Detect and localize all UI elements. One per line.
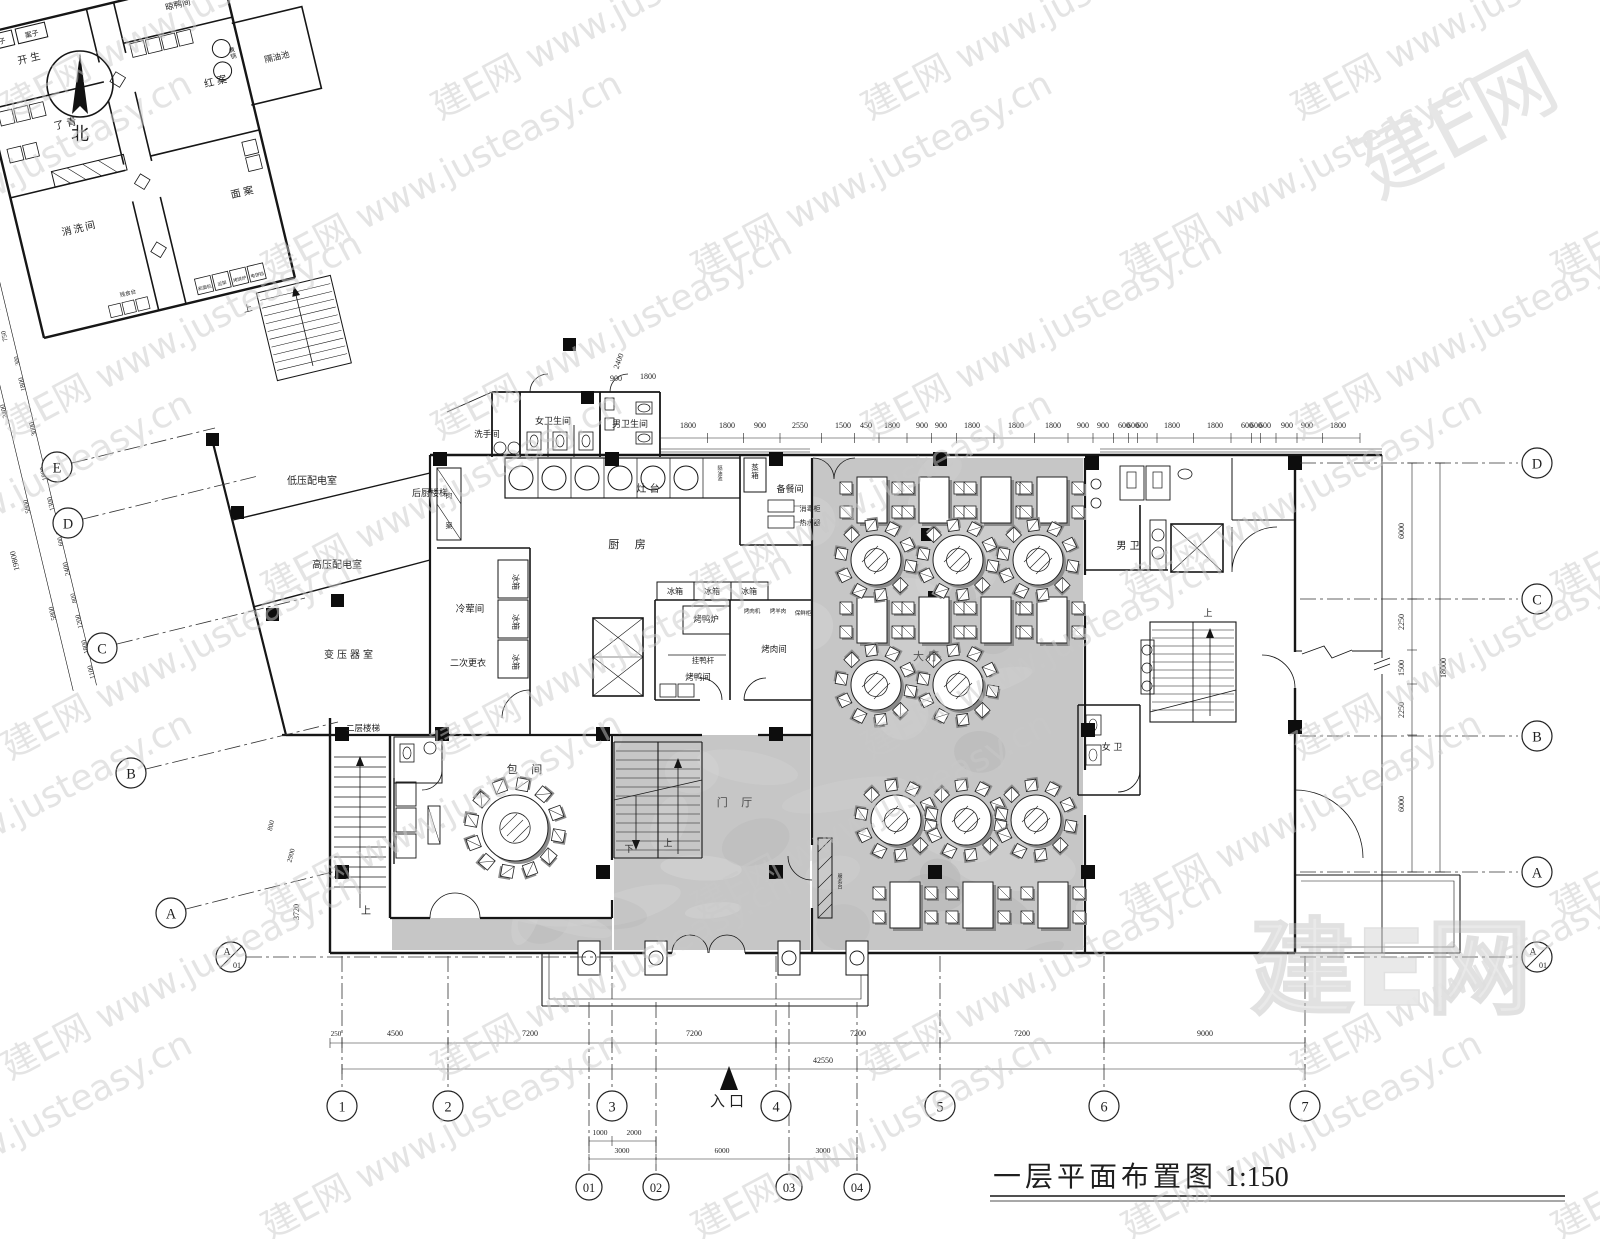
room-label: 大厅 [913,649,943,663]
wing-room-label: 红案 [203,72,231,91]
dim-text: 2250 [1397,614,1406,630]
marble-blob [445,853,556,913]
marble-blob [552,492,677,576]
dim-text: 2900 [285,847,296,863]
dim-text: 1800 [680,421,696,430]
grid-label: 01 [583,1181,595,1195]
grid-label: 4 [772,1100,779,1116]
dim-text: 250 [331,1030,342,1038]
wing-dim-text: 300 [14,356,22,366]
room-label: 男 卫 [1116,540,1139,552]
grid-bubble-01: 01 [576,1174,602,1200]
dim-total-text: 42550 [813,1056,833,1065]
equipment-label: 烤肉机 [744,607,761,615]
dim-text: 7200 [850,1029,866,1038]
dim-text: 7200 [686,1029,702,1038]
grid-label: B [1532,730,1542,746]
dim-text: 600 [1136,421,1148,430]
equipment-label: 烤羊肉 [770,607,787,615]
wing-dim-text: 750 [0,330,10,343]
wing-dim-text: 1800 [17,376,28,392]
marble-blob [741,597,817,651]
wing-room-label: 面案 [229,182,257,201]
room-label: 变压器室 [324,648,376,661]
wing-dim-text: 5800 [47,605,58,621]
room-label: 冰箱 [511,654,521,670]
wing-dim-text: 600 [57,537,65,547]
dim-text: 1500 [835,421,851,430]
wing-room-label: 和面机 [197,282,212,292]
equipment-label: 服务台 [837,874,842,891]
entrance-arrow [720,1066,738,1090]
dim-text: 900 [610,374,622,383]
marble-blob [443,538,476,570]
drawing-title: 一层平面布置图 [993,1160,1217,1193]
grid-label: 1 [338,1100,345,1116]
title-block: 一层平面布置图1:150 [993,1160,1289,1193]
grid-bubble-A: A [1522,857,1552,887]
dim-text: 900 [754,421,766,430]
grid-label: 6 [1100,1100,1107,1116]
room-label: 二层楼梯 [346,723,381,734]
stair-direction-label: 上 [663,838,672,849]
dim-text: 1800 [719,421,735,430]
room-label: 挂鸭杆 [692,655,715,665]
marble-blob [416,513,544,588]
grid-bubble-A: A [156,898,186,928]
wing-dim-text: 1470 [0,296,2,312]
room-label: 烤肉间 [761,644,787,655]
wing-room-label: 案子 [0,36,7,48]
room-label: 门 厅 [717,795,758,809]
grid-label: 02 [650,1181,662,1195]
grid-label: 3 [608,1100,615,1116]
dim-text: 900 [1097,421,1109,430]
room-label: 冰箱 [511,614,521,630]
dim-text: 600 [1259,421,1271,430]
grid-label: D [63,517,73,533]
wing-dim-text: 19800 [8,550,21,572]
room-label: 低压配电室 [287,474,337,487]
wing-room-label: 案子 [24,28,40,40]
room-label: 灶 台 [636,482,659,495]
dim-text: 900 [935,421,947,430]
grid-bubble-6: 6 [1089,1091,1119,1121]
stair-direction-label: 上 [1203,608,1212,619]
dim-text: 3000 [615,1146,630,1155]
dim-text: 4500 [387,1029,403,1038]
kitchen-wing: 案子案子开生晾鸭间红案隔油池煮锅了青面案消洗间残食台上和面机运架烤饼炉电饼铛11… [0,0,447,698]
stair-direction-label: 下 [624,845,633,855]
watermark-text: 建E网 www.justeasy.cn [855,0,1229,128]
room-label: 冰箱 [511,574,521,590]
wing-room-label: 隔油池 [263,49,291,66]
marble-blob [335,655,441,721]
dim-text: 2000 [627,1128,642,1137]
equipment-label: 保鲜柜 [795,609,812,617]
room-label: 洗手间 [474,429,500,440]
marble-blob [433,522,500,565]
grid-bubble-04: 04 [844,1174,870,1200]
watermark-layer: 建E网 www.justeasy.cn建E网 www.justeasy.cn建E… [0,0,1600,1239]
dim-text: 1800 [1207,421,1223,430]
stair-direction-label: 上 [361,905,371,917]
grid-bubble-D: D [1522,448,1552,478]
wing-room-label: 消洗间 [60,218,98,239]
dim-text: 6000 [1397,796,1406,812]
dim-text: 800 [266,819,276,832]
grid-bubble-3: 3 [597,1091,627,1121]
entrance-label: 入口 [710,1092,748,1110]
marble-blob [668,475,730,546]
grid-label: D [1532,457,1542,473]
room-label: 冷荤间 [456,603,485,615]
dim-text: 6000 [1397,523,1406,539]
wing-dim-text: 2400 [61,561,72,577]
room-label: 冰箱 [667,586,683,596]
room-label: 女 卫 [1102,741,1123,753]
room-label: 二次更衣 [450,657,486,669]
grid-bubble-4: 4 [761,1091,791,1121]
equipment-label: 蒸箱 [751,462,759,480]
grid-label: A [1532,866,1543,882]
dim-text: 1000 [593,1128,608,1137]
dim-text: 1800 [1164,421,1180,430]
equipment-label: 案 [446,521,453,530]
watermark-logo: 建E网 [1250,908,1532,1030]
grid-bubble-02: 02 [643,1174,669,1200]
grid-label: C [97,642,107,658]
dim-text: 900 [1077,421,1089,430]
marble-blob [374,759,402,818]
room-label: 烤鸭间 [685,672,711,683]
drawing-scale: 1:150 [1225,1162,1289,1193]
wing-room-label: 煮锅 [228,45,237,60]
floor-plan-canvas: 案子案子开生晾鸭间红案隔油池煮锅了青面案消洗间残食台上和面机运架烤饼炉电饼铛11… [0,0,1600,1239]
room-label: 备餐间 [776,483,803,495]
marble-blob [338,681,368,725]
grid-bubble-D: D [53,508,83,538]
wing-dim-text: 1200 [74,613,85,629]
wing-dim-text: 800 [70,593,79,604]
dim-text: 9000 [1197,1029,1213,1038]
wing-room-label: 开生 [16,49,44,68]
floor-plan-page: 案子案子开生晾鸭间红案隔油池煮锅了青面案消洗间残食台上和面机运架烤饼炉电饼铛11… [0,0,1600,1239]
watermark-text: 建E网 www.justeasy.cn [1545,1023,1600,1239]
grid-label: A [166,907,177,923]
grid-bubble-C: C [87,633,117,663]
room-label: 厨 房 [608,538,652,551]
dim-text: 1800 [640,372,656,381]
watermark-text: 建E网 www.justeasy.cn [425,0,799,128]
grid-label: 04 [851,1181,863,1195]
grid-bubble-B: B [1522,721,1552,751]
watermark-text: 建E网 www.justeasy.cn [0,0,369,128]
equipment-label: 隔油池 [717,465,722,483]
dim-text: 2550 [792,421,808,430]
grid-bubble-1: 1 [327,1091,357,1121]
wing-room-label: 运架 [217,279,228,288]
dim-text: 6000 [715,1146,730,1155]
wing-room-label: 残食台 [119,287,137,299]
